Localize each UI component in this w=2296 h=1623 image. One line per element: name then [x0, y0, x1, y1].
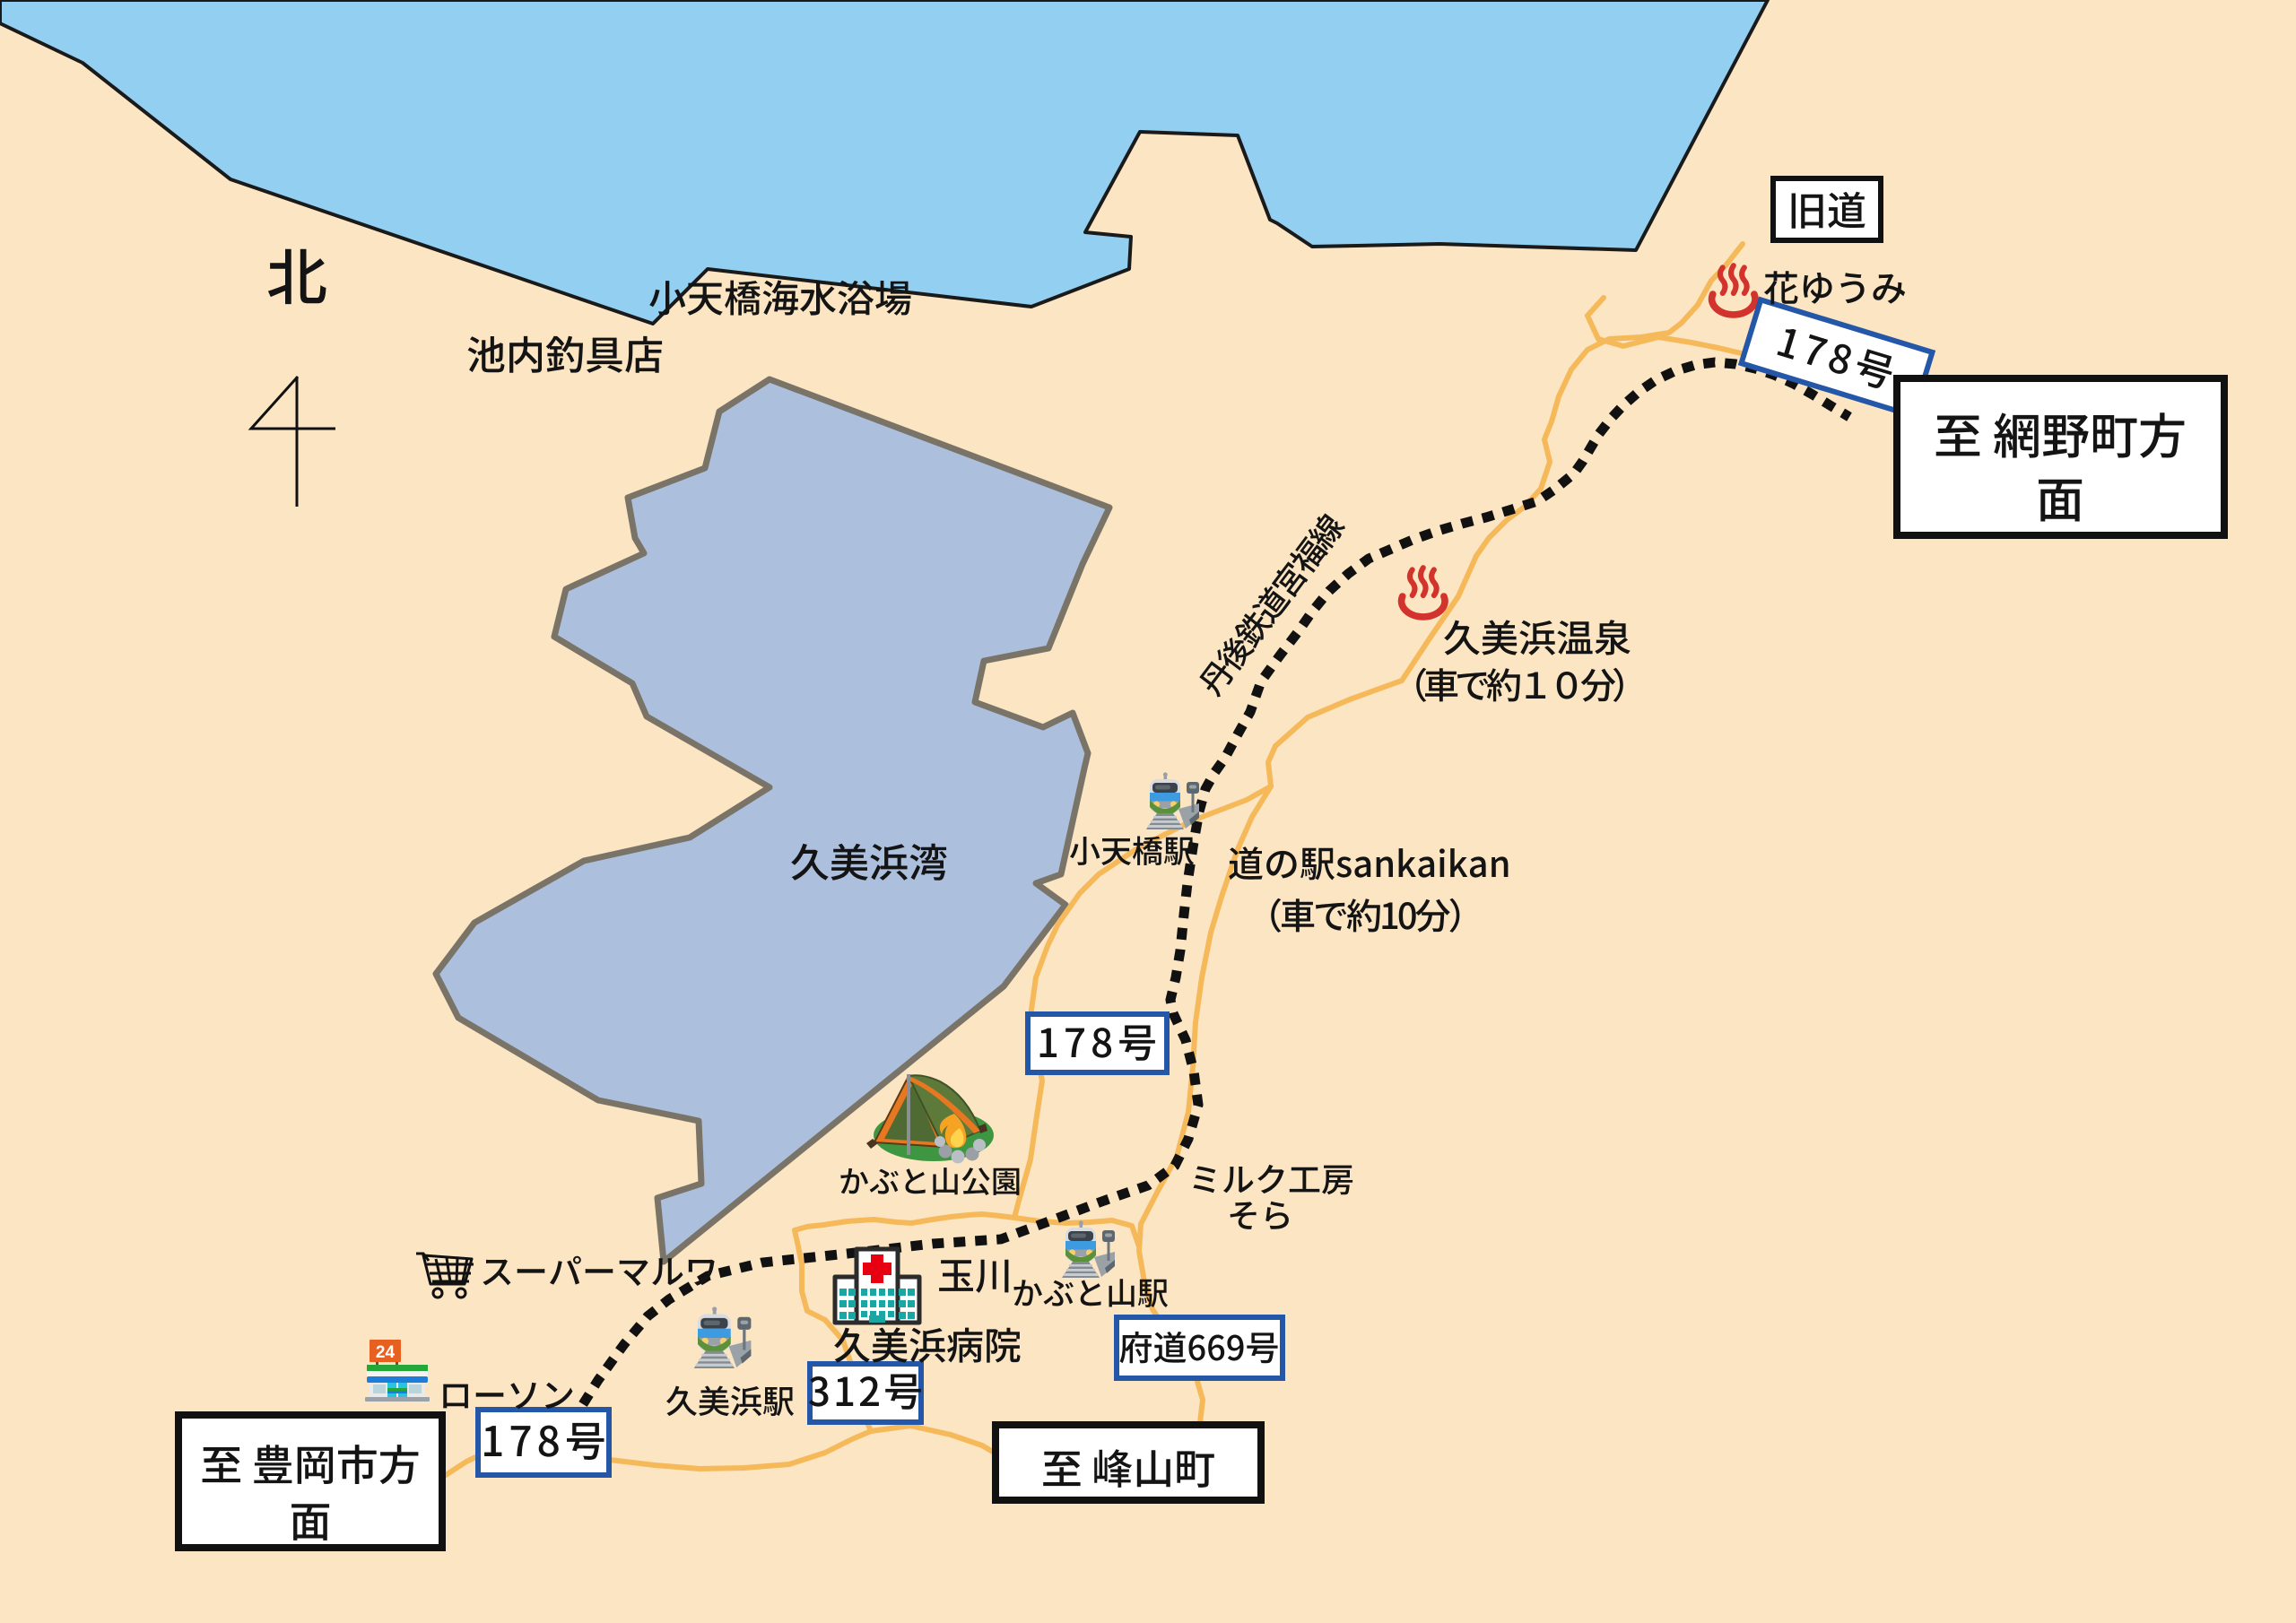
svg-text:24: 24 — [376, 1343, 396, 1362]
